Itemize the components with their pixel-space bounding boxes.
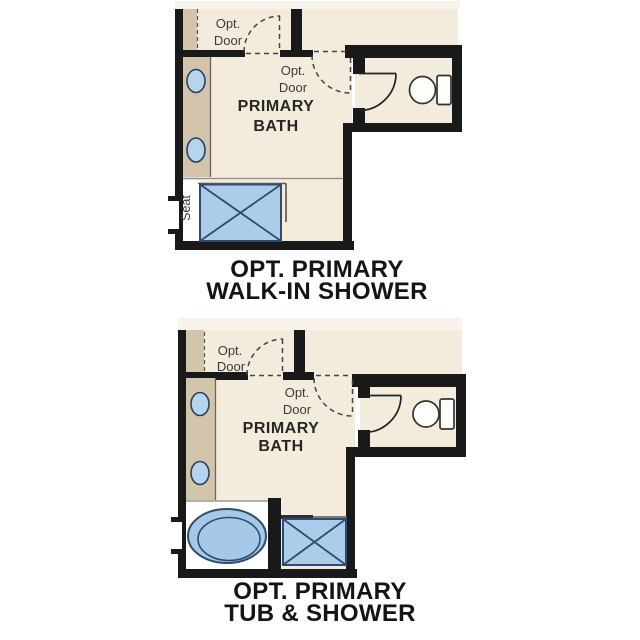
opt-door-label-line2: Door: [279, 80, 308, 95]
plan-caption-line2: TUB & SHOWER: [224, 600, 416, 627]
closet-strip: [183, 9, 197, 52]
window: [171, 517, 182, 554]
seat-label: Seat: [179, 195, 193, 221]
toilet-bowl: [413, 401, 439, 427]
wall-tub-shower-divider: [268, 498, 281, 578]
room-label-line2: BATH: [253, 118, 298, 135]
window-glazing: [171, 521, 182, 550]
wall-toilet-left-lower: [353, 108, 365, 132]
room-label-line1: PRIMARY: [238, 98, 315, 115]
sink-bottom: [187, 138, 205, 162]
wall-right-lower: [346, 447, 355, 578]
floor-beyond-top: [175, 1, 460, 9]
room-label-line2: BATH: [258, 438, 303, 455]
floorplan-page: Seat Opt. Door Opt. Door PRIMARY BATH OP…: [0, 0, 640, 640]
sink-top: [187, 70, 205, 93]
toilet-bowl: [410, 77, 436, 104]
double-sink-vanity: [186, 378, 216, 500]
closet-strip: [186, 330, 204, 372]
sink-top: [191, 393, 209, 416]
window-frame-bottom: [168, 229, 179, 234]
window-frame-top: [168, 196, 179, 201]
window-glazing: [168, 200, 179, 230]
wall-bottom: [175, 241, 354, 250]
opt-door-label-line2: Door: [214, 33, 243, 48]
opt-door-label-line1: Opt.: [285, 385, 310, 400]
window: [168, 196, 179, 234]
wall-toilet-left-lower: [358, 430, 370, 457]
wall-top-middle: [283, 372, 314, 380]
window-frame-bottom: [171, 549, 182, 554]
shower: [281, 515, 347, 565]
toilet-tank: [440, 399, 454, 429]
toilet-tank: [437, 76, 451, 105]
opt-door-label-line1: Opt.: [216, 16, 241, 31]
wall-toilet-top: [352, 374, 466, 387]
floor-beyond-top: [178, 318, 462, 332]
window-frame-top: [171, 517, 182, 522]
opt-door-label-line2: Door: [217, 359, 246, 374]
sink-bottom: [191, 462, 209, 485]
wall-right-lower: [343, 123, 352, 250]
opt-door-label-line2: Door: [283, 402, 312, 417]
plan-walk-in-shower: Seat Opt. Door Opt. Door PRIMARY BATH OP…: [168, 1, 462, 305]
double-sink-vanity: [183, 57, 211, 177]
wall-bottom: [178, 569, 357, 578]
wall-toilet-right: [452, 45, 462, 132]
opt-door-label-line1: Opt.: [218, 343, 243, 358]
wall-top-left: [183, 50, 245, 57]
plan-tub-and-shower: Opt. Door Opt. Door PRIMARY BATH OPT. PR…: [171, 318, 466, 627]
room-label-line1: PRIMARY: [243, 420, 320, 437]
floor-plan-image: Seat Opt. Door Opt. Door PRIMARY BATH OP…: [0, 0, 640, 640]
wall-center-stub: [291, 9, 302, 57]
plan-caption-line2: WALK-IN SHOWER: [206, 278, 428, 305]
wall-toilet-top: [345, 45, 462, 58]
wall-top-middle: [280, 50, 313, 57]
bathtub: [186, 501, 270, 569]
wall-toilet-left-upper: [353, 58, 365, 74]
opt-door-label-line1: Opt.: [281, 63, 306, 78]
